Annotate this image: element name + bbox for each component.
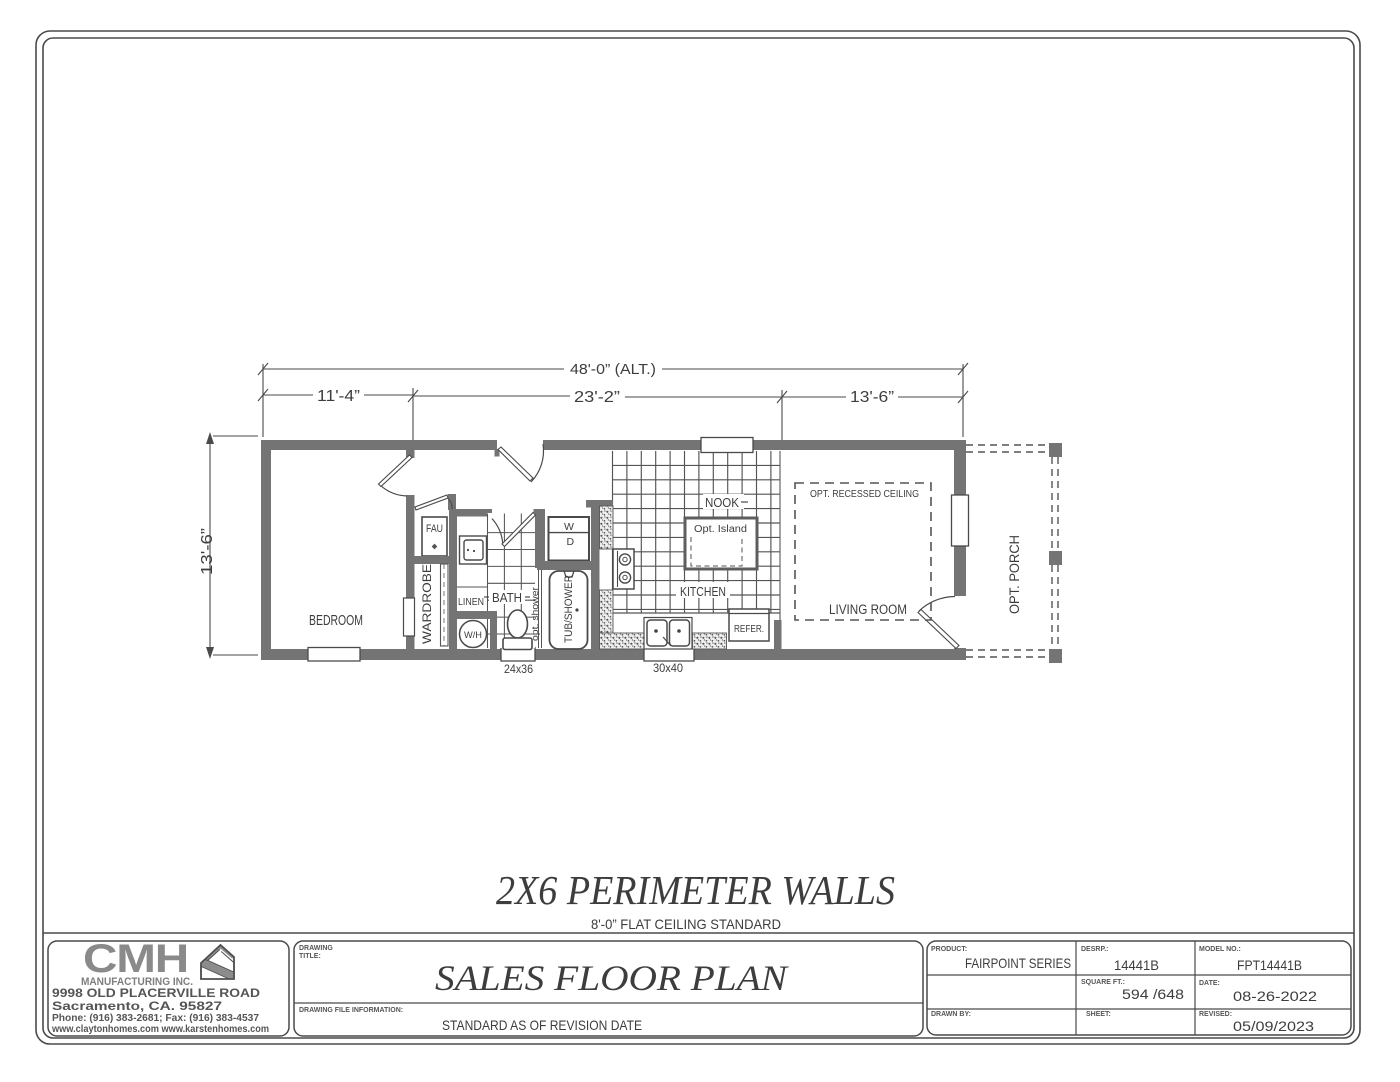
svg-text:W: W <box>564 521 574 533</box>
svg-text:D: D <box>567 536 575 548</box>
svg-text:Sacramento, CA. 95827: Sacramento, CA. 95827 <box>52 999 222 1013</box>
svg-text:FPT14441B: FPT14441B <box>1237 957 1302 973</box>
svg-text:9998 OLD PLACERVILLE ROAD: 9998 OLD PLACERVILLE ROAD <box>52 986 260 1000</box>
svg-text:2X6 PERIMETER WALLS: 2X6 PERIMETER WALLS <box>496 867 895 913</box>
svg-text:MODEL NO.:: MODEL NO.: <box>1199 946 1241 953</box>
svg-text:TITLE:: TITLE: <box>299 953 321 960</box>
svg-text:www.claytonhomes.com www.kars: www.claytonhomes.com www.karstenhomes.co… <box>51 1023 269 1035</box>
svg-text:DATE:: DATE: <box>1199 980 1220 987</box>
svg-text:BEDROOM: BEDROOM <box>309 613 363 629</box>
svg-text:48'-0” (ALT.): 48'-0” (ALT.) <box>570 362 656 378</box>
svg-text:opt. shower: opt. shower <box>530 587 540 641</box>
svg-text:KITCHEN: KITCHEN <box>680 584 726 599</box>
svg-text:SALES FLOOR PLAN: SALES FLOOR PLAN <box>435 958 789 998</box>
svg-text:REVISED:: REVISED: <box>1199 1011 1232 1018</box>
svg-text:FAIRPOINT SERIES: FAIRPOINT SERIES <box>965 955 1071 971</box>
svg-text:NOOK: NOOK <box>705 495 739 510</box>
svg-text:WARDROBE: WARDROBE <box>420 564 434 644</box>
svg-text:Opt. Island: Opt. Island <box>694 524 747 535</box>
svg-text:CMH: CMH <box>83 937 188 981</box>
svg-text:DRAWN BY:: DRAWN BY: <box>931 1011 971 1018</box>
svg-text:SQUARE FT.:: SQUARE FT.: <box>1081 979 1125 986</box>
svg-text:OPT. RECESSED CEILING: OPT. RECESSED CEILING <box>810 489 919 500</box>
svg-text:LIVING ROOM: LIVING ROOM <box>829 602 907 617</box>
svg-text:08-26-2022: 08-26-2022 <box>1233 988 1317 1004</box>
svg-text:W/H: W/H <box>464 630 482 640</box>
svg-text:PRODUCT:: PRODUCT: <box>931 946 967 953</box>
svg-text:14441B: 14441B <box>1114 957 1159 973</box>
svg-text:13'-6”: 13'-6” <box>199 528 216 575</box>
svg-text:SHEET:: SHEET: <box>1086 1011 1111 1018</box>
svg-text:REFER.: REFER. <box>734 624 764 635</box>
svg-text:24x36: 24x36 <box>504 662 533 676</box>
svg-text:8'-0” FLAT CEILING STANDARD: 8'-0” FLAT CEILING STANDARD <box>591 916 781 932</box>
svg-text:TUB/SHOWER: TUB/SHOWER <box>563 575 575 643</box>
svg-text:05/09/2023: 05/09/2023 <box>1233 1018 1314 1034</box>
svg-text:STANDARD AS OF REVISION DA: STANDARD AS OF REVISION DATE <box>442 1017 642 1033</box>
svg-text:13'-6”: 13'-6” <box>850 389 894 406</box>
svg-text:DRAWING: DRAWING <box>299 945 333 952</box>
svg-text:DESRP.:: DESRP.: <box>1081 946 1109 953</box>
svg-text:30x40: 30x40 <box>653 661 683 675</box>
svg-text:BATH: BATH <box>492 590 522 605</box>
svg-text:LINEN: LINEN <box>458 596 484 608</box>
svg-text:DRAWING FILE INFORMATION:: DRAWING FILE INFORMATION: <box>299 1007 403 1014</box>
svg-text:OPT. PORCH: OPT. PORCH <box>1006 535 1022 614</box>
svg-text:23'-2”: 23'-2” <box>574 389 620 406</box>
svg-text:FAU: FAU <box>426 523 443 535</box>
svg-text:594 /648: 594 /648 <box>1122 986 1184 1002</box>
svg-text:11'-4”: 11'-4” <box>317 388 360 405</box>
